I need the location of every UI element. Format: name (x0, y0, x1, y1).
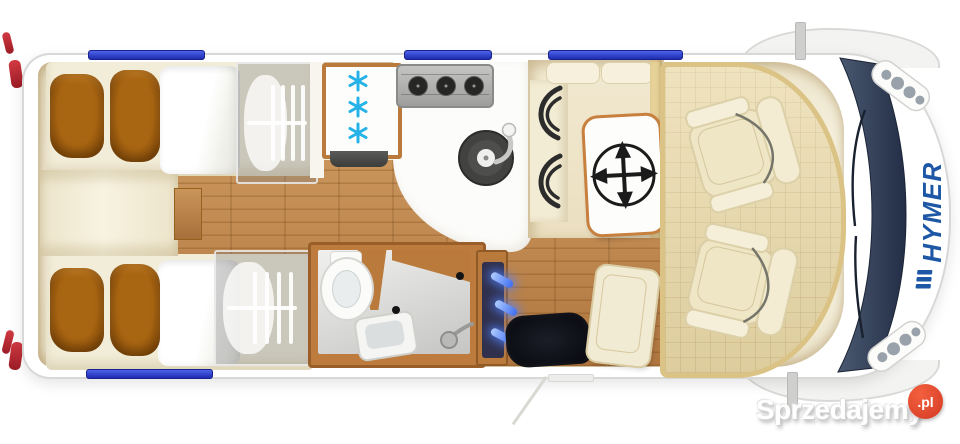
fridge (322, 63, 402, 159)
side-mirror-top (795, 22, 806, 60)
toilet-bowl (332, 270, 361, 308)
hymer-logo-bars (916, 270, 933, 289)
dinette-single-seat (584, 262, 662, 369)
tail-lamp-top-outer (1, 31, 14, 54)
bed-step (174, 188, 202, 240)
bench-backrest-arcs (528, 84, 572, 224)
hanger-icon (253, 272, 257, 344)
hob-grate-line (401, 74, 489, 75)
freezer-snowflakes-icon (326, 67, 390, 147)
seat-stitch (595, 273, 648, 354)
entry-door-step (548, 374, 594, 382)
entry-door-mat (504, 311, 591, 369)
windshield (838, 58, 906, 372)
watermark-pl-badge: .pl (908, 384, 943, 419)
cab-front: HYMER (815, 46, 955, 386)
hanger-icon (289, 272, 293, 344)
drain-dot (392, 306, 400, 314)
between-beds-platform (40, 170, 178, 256)
hanger-icon (301, 85, 305, 161)
burner-icon (408, 76, 428, 96)
washbasin-bowl (364, 319, 405, 350)
watermark-site-name: Sprzedajemy (756, 394, 923, 426)
fridge-base (330, 151, 388, 167)
passenger-swivel-seat (676, 221, 802, 344)
motorhome-floorplan-image: HYMER Sprzedajemy .pl (0, 0, 960, 444)
roof-window-dinette (548, 50, 683, 60)
table-mobility-compass-icon (584, 115, 664, 235)
hanger-icon (265, 272, 269, 344)
hymer-logo: HYMER (916, 161, 947, 288)
drain-dot (456, 272, 464, 280)
hanger-icon (291, 85, 295, 161)
dinette-wall-cushion (601, 62, 653, 84)
hanger-rail (227, 306, 297, 310)
hanger-icon (271, 85, 275, 161)
watermark: Sprzedajemy .pl (756, 384, 956, 438)
pillow-bottom-2 (110, 264, 160, 356)
hanger-icon (277, 272, 281, 344)
wardrobe-top (236, 62, 318, 184)
burner-icon (436, 76, 456, 96)
sink (454, 116, 524, 190)
burner-icon (464, 76, 484, 96)
pillow-top-1 (50, 74, 104, 158)
roof-window-kitchen (404, 50, 492, 60)
hanger-rail (247, 121, 306, 125)
hymer-logo-text: HYMER (917, 161, 947, 262)
hanger-icon (281, 85, 285, 161)
washbasin (353, 310, 419, 363)
roof-window-rear (88, 50, 205, 60)
hob-three-burner (396, 64, 494, 108)
shower-head-icon (434, 316, 476, 358)
pillow-top-2 (110, 70, 160, 162)
dinette-wall-cushion (546, 62, 600, 84)
open-door-swing-line (512, 376, 548, 425)
side-window-bottom (86, 369, 213, 379)
pillow-bottom-1 (50, 268, 104, 352)
duvet-top-bed (160, 66, 240, 174)
movable-table (581, 112, 667, 238)
wardrobe-bottom (214, 250, 310, 366)
